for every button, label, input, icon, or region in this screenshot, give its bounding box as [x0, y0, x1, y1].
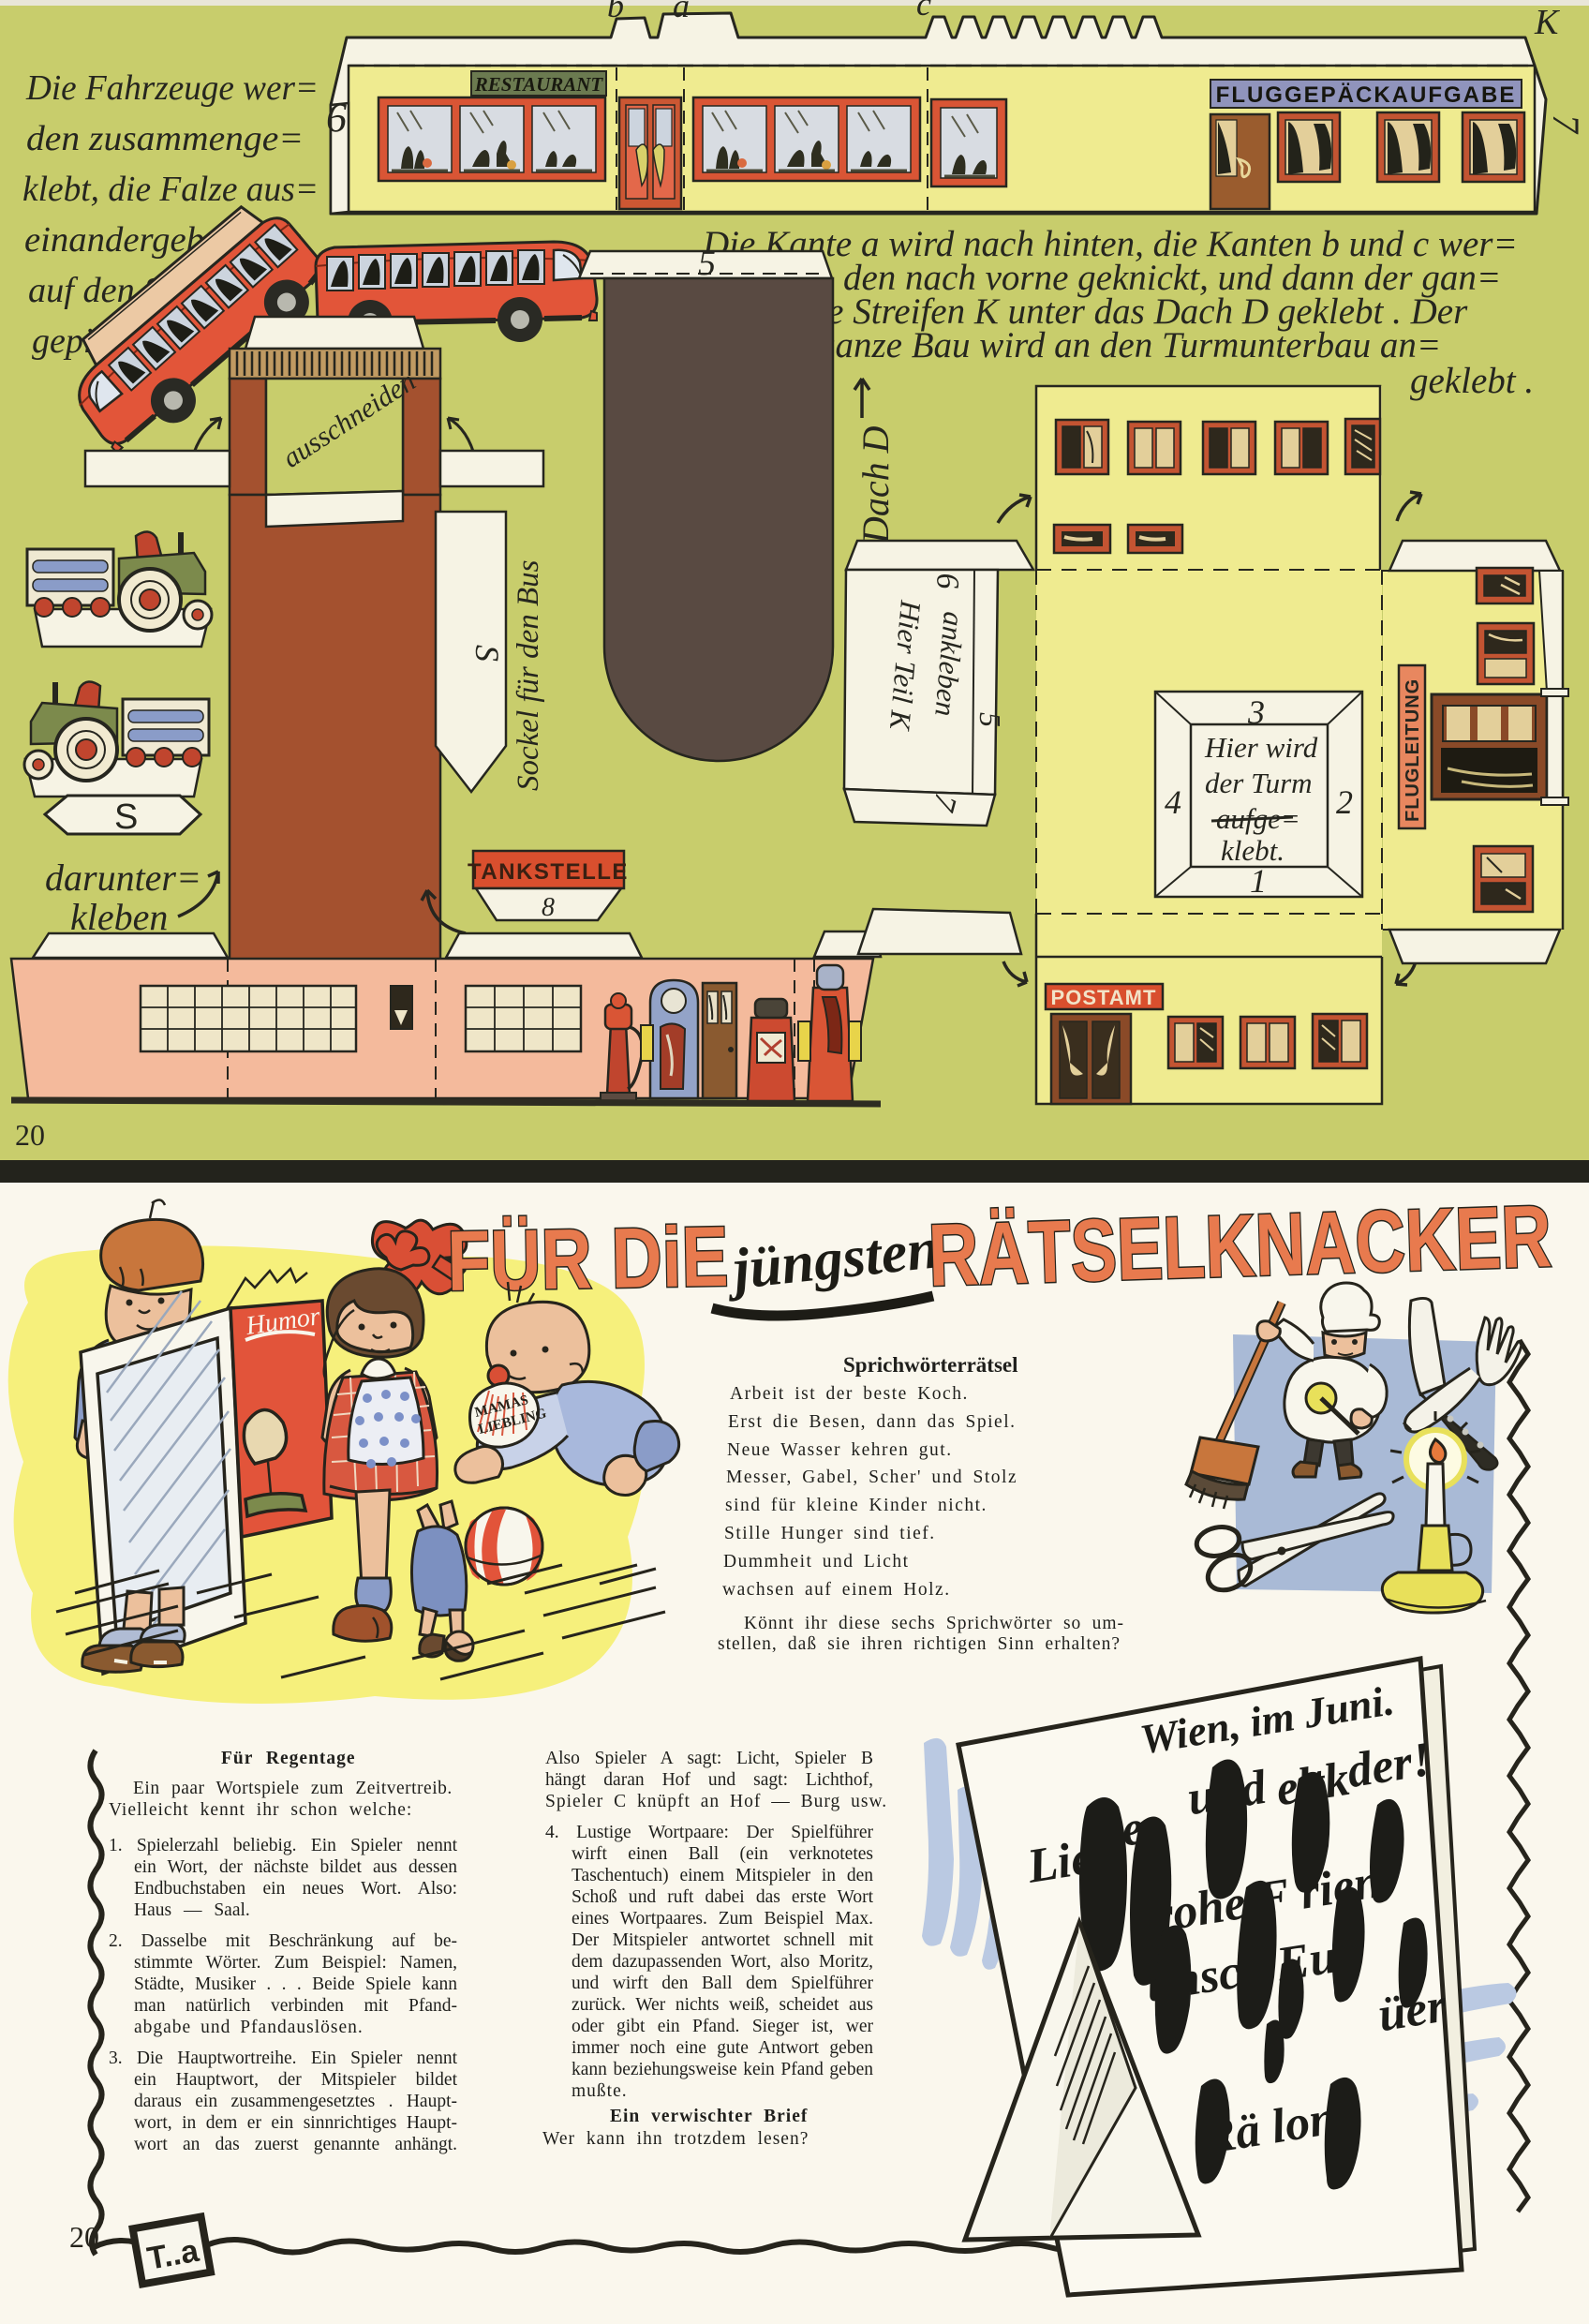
svg-text:S: S — [468, 645, 506, 662]
svg-text:FÜR DiE: FÜR DiE — [447, 1210, 730, 1309]
svg-text:Dach D: Dach D — [854, 425, 897, 544]
svg-text:b: b — [607, 0, 624, 24]
svg-text:S: S — [114, 797, 138, 837]
svg-text:K: K — [1534, 3, 1560, 42]
svg-text:TANKSTELLE: TANKSTELLE — [468, 859, 629, 885]
svg-text:2: 2 — [1336, 783, 1353, 821]
svg-text:8: 8 — [542, 893, 555, 922]
svg-text:RÄTSELKNACKER: RÄTSELKNACKER — [927, 1186, 1552, 1304]
svg-text:5: 5 — [973, 712, 1007, 727]
svg-text:a: a — [673, 0, 690, 24]
svg-text:geklebt .: geklebt . — [1410, 361, 1534, 401]
svg-text:20: 20 — [15, 1118, 45, 1152]
svg-text:POSTAMT: POSTAMT — [1051, 986, 1157, 1009]
svg-text:6: 6 — [929, 572, 965, 589]
svg-text:6: 6 — [326, 95, 347, 141]
svg-text:7: 7 — [1545, 114, 1587, 135]
svg-text:Die Fahrzeuge wer=: Die Fahrzeuge wer= — [25, 68, 319, 108]
svg-text:kleben: kleben — [70, 896, 168, 938]
svg-text:FLUGLEITUNG: FLUGLEITUNG — [1403, 678, 1423, 822]
svg-text:ganze Bau wird an den Turmunte: ganze Bau wird an den Turmunterbau an= — [817, 325, 1441, 365]
svg-text:klebt, die Falze aus=: klebt, die Falze aus= — [22, 170, 319, 209]
svg-text:3: 3 — [1247, 693, 1265, 731]
svg-text:RESTAURANT: RESTAURANT — [474, 73, 604, 96]
svg-text:5: 5 — [698, 244, 716, 283]
svg-text:4: 4 — [1165, 783, 1181, 821]
svg-text:1: 1 — [1250, 862, 1267, 900]
svg-text:den zusammenge=: den zusammenge= — [26, 119, 304, 158]
svg-text:20: 20 — [69, 2220, 99, 2254]
svg-text:der Turm: der Turm — [1205, 767, 1313, 799]
svg-text:klebt.: klebt. — [1221, 834, 1285, 867]
svg-text:jüngsten: jüngsten — [721, 1216, 942, 1303]
svg-text:c: c — [916, 0, 931, 22]
svg-text:Sockel für den Bus: Sockel für den Bus — [512, 559, 545, 791]
svg-text:FLUGGEPÄCKAUFGABE: FLUGGEPÄCKAUFGABE — [1216, 82, 1517, 108]
svg-text:darunter=: darunter= — [45, 857, 201, 899]
svg-text:Hier wird: Hier wird — [1204, 731, 1318, 764]
